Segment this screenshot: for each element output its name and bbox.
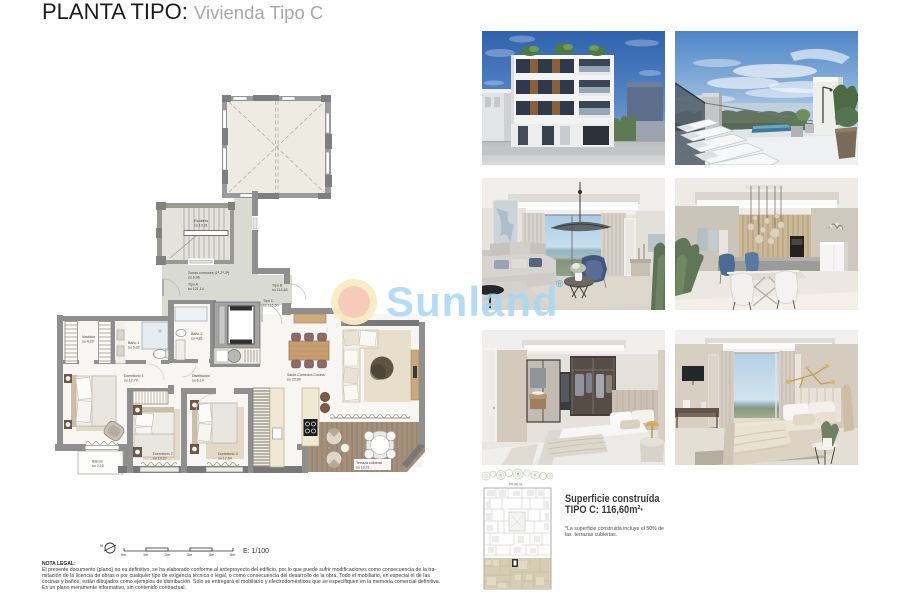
svg-text:su 10,21: su 10,21	[356, 466, 370, 470]
svg-text:su 5,32: su 5,32	[128, 346, 140, 350]
svg-text:4m: 4m	[209, 553, 214, 557]
svg-text:Dormitorio 2: Dormitorio 2	[153, 452, 173, 456]
svg-text:2m: 2m	[165, 553, 170, 557]
svg-text:N: N	[100, 543, 103, 548]
svg-text:su 114,48: su 114,48	[272, 288, 288, 292]
svg-text:su 12,79: su 12,79	[124, 379, 138, 383]
svg-text:1m: 1m	[143, 553, 148, 557]
svg-text:su 121,14: su 121,14	[188, 287, 204, 291]
svg-text:Balcón: Balcón	[92, 460, 103, 464]
svg-text:su 10,27: su 10,27	[153, 457, 167, 461]
svg-text:su 6,96: su 6,96	[188, 276, 200, 280]
svg-text:Dormitorio 1: Dormitorio 1	[124, 374, 144, 378]
svg-text:E: 1/100: E: 1/100	[243, 548, 269, 555]
svg-text:5m: 5m	[230, 553, 235, 557]
svg-text:PINADA: PINADA	[509, 483, 523, 487]
svg-text:su 4,20: su 4,20	[82, 340, 94, 344]
svg-text:Dormitorio 3: Dormitorio 3	[218, 452, 238, 456]
svg-text:3m: 3m	[187, 553, 192, 557]
svg-text:Tipo C: Tipo C	[263, 299, 274, 303]
svg-text:Distribuidor: Distribuidor	[192, 374, 211, 378]
svg-text:Baño 1: Baño 1	[128, 341, 139, 345]
svg-text:Vestidor: Vestidor	[82, 335, 96, 339]
svg-text:su 12,64: su 12,64	[218, 457, 232, 461]
svg-text:Zonas comunes (1ª-2ª-3ª): Zonas comunes (1ª-2ª-3ª)	[188, 271, 229, 275]
svg-text:Escalera: Escalera	[194, 219, 208, 223]
svg-text:Tipo B: Tipo B	[272, 284, 283, 288]
svg-text:Tipo A: Tipo A	[188, 283, 199, 287]
svg-text:su 6,14: su 6,14	[192, 379, 204, 383]
svg-text:su 4,81: su 4,81	[191, 337, 203, 341]
svg-text:Terraza cubierta: Terraza cubierta	[356, 461, 382, 465]
svg-text:su 23,99: su 23,99	[287, 378, 301, 382]
svg-text:0m: 0m	[121, 553, 126, 557]
svg-text:Salón-Comedor-Cocina: Salón-Comedor-Cocina	[287, 373, 325, 377]
svg-text:su 2,10: su 2,10	[92, 464, 104, 468]
svg-text:Baño 2: Baño 2	[191, 332, 202, 336]
svg-text:su 10,31: su 10,31	[194, 224, 208, 228]
